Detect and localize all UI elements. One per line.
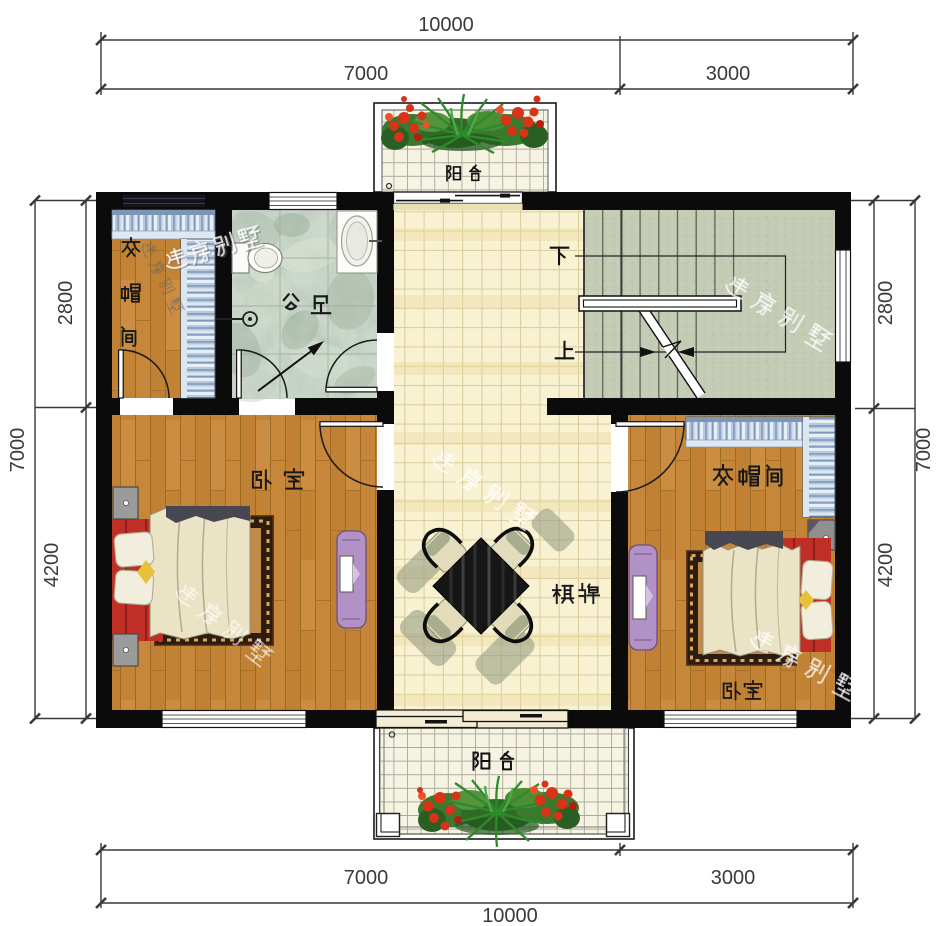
svg-text:7000: 7000	[7, 428, 29, 473]
svg-text:3000: 3000	[706, 63, 751, 85]
svg-text:10000: 10000	[482, 905, 538, 926]
svg-text:3000: 3000	[711, 867, 756, 889]
svg-text:4200: 4200	[875, 543, 897, 588]
svg-text:10000: 10000	[418, 14, 474, 36]
svg-text:4200: 4200	[41, 543, 63, 588]
svg-text:7000: 7000	[913, 428, 935, 473]
svg-text:7000: 7000	[344, 63, 389, 85]
svg-text:2800: 2800	[875, 281, 897, 326]
svg-text:7000: 7000	[344, 867, 389, 889]
svg-text:2800: 2800	[55, 281, 77, 326]
